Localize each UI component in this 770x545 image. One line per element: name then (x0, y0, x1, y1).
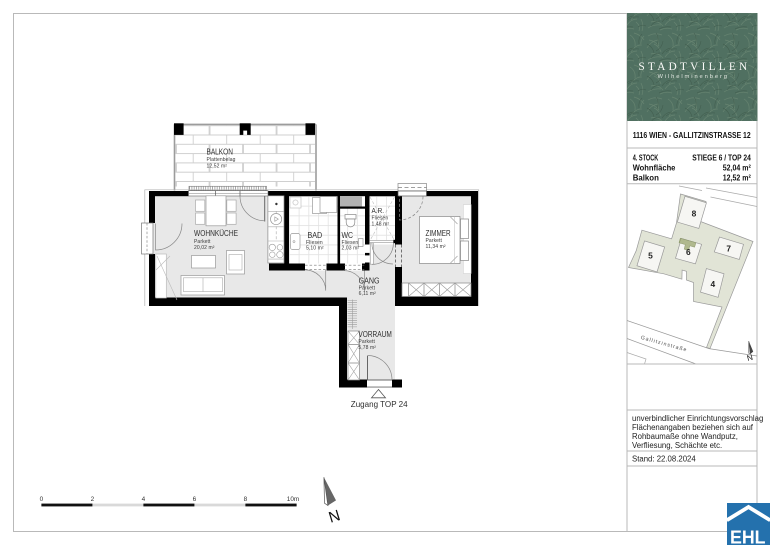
svg-text:Balkon: Balkon (633, 174, 659, 183)
svg-text:52,04 m²: 52,04 m² (723, 164, 751, 173)
svg-text:6: 6 (193, 496, 197, 503)
svg-text:5,78 m²: 5,78 m² (358, 345, 376, 351)
svg-text:4: 4 (142, 496, 146, 503)
svg-text:A.R.: A.R. (372, 206, 385, 215)
svg-text:8: 8 (244, 496, 248, 503)
svg-text:VORRAUM: VORRAUM (358, 330, 391, 339)
svg-text:4. STOCK: 4. STOCK (633, 154, 659, 163)
svg-text:4: 4 (710, 279, 715, 289)
svg-text:Wohnfläche: Wohnfläche (633, 164, 676, 173)
svg-text:1,48 m²: 1,48 m² (372, 221, 390, 227)
svg-text:Zugang TOP 24: Zugang TOP 24 (351, 399, 408, 409)
svg-text:5,10 m²: 5,10 m² (306, 246, 324, 252)
svg-text:Verfliesung, Schächte etc.: Verfliesung, Schächte etc. (632, 441, 722, 450)
svg-text:STIEGE 6 / TOP 24: STIEGE 6 / TOP 24 (692, 154, 751, 163)
svg-text:unverbindlicher Einrichtungsvo: unverbindlicher Einrichtungsvorschlag (632, 414, 763, 423)
svg-text:Plattenbelag: Plattenbelag (207, 157, 236, 163)
svg-text:BALKON: BALKON (207, 148, 233, 157)
svg-text:Stand: 22.08.2024: Stand: 22.08.2024 (632, 455, 696, 464)
svg-text:12,52 m²: 12,52 m² (207, 163, 228, 169)
svg-text:6,11 m²: 6,11 m² (359, 291, 377, 297)
svg-text:5: 5 (648, 251, 653, 261)
svg-text:Wilhelminenberg: Wilhelminenberg (658, 74, 728, 80)
svg-text:7: 7 (726, 244, 731, 254)
svg-text:10m: 10m (287, 496, 299, 503)
svg-text:WOHNKÜCHE: WOHNKÜCHE (194, 229, 238, 238)
svg-text:12,52 m²: 12,52 m² (723, 174, 751, 183)
svg-text:2,03 m²: 2,03 m² (342, 246, 360, 252)
svg-text:6: 6 (686, 247, 691, 257)
svg-text:ZIMMER: ZIMMER (426, 229, 451, 238)
svg-text:GANG: GANG (359, 277, 380, 286)
svg-text:BAD: BAD (308, 231, 323, 240)
svg-text:11,34 m²: 11,34 m² (426, 244, 446, 250)
svg-text:0: 0 (40, 496, 44, 503)
svg-text:Flächenangaben beziehen sich a: Flächenangaben beziehen sich auf (632, 423, 754, 432)
svg-text:2: 2 (91, 496, 95, 503)
svg-text:WC: WC (342, 231, 354, 240)
svg-text:8: 8 (692, 209, 697, 219)
svg-text:Rohbaumaße ohne Wandputz,: Rohbaumaße ohne Wandputz, (632, 432, 738, 441)
svg-text:20,02 m²: 20,02 m² (194, 245, 215, 251)
svg-text:EHL: EHL (730, 528, 766, 545)
svg-text:1116 WIEN - GALLITZINSTRASSE 1: 1116 WIEN - GALLITZINSTRASSE 12 (633, 130, 751, 140)
